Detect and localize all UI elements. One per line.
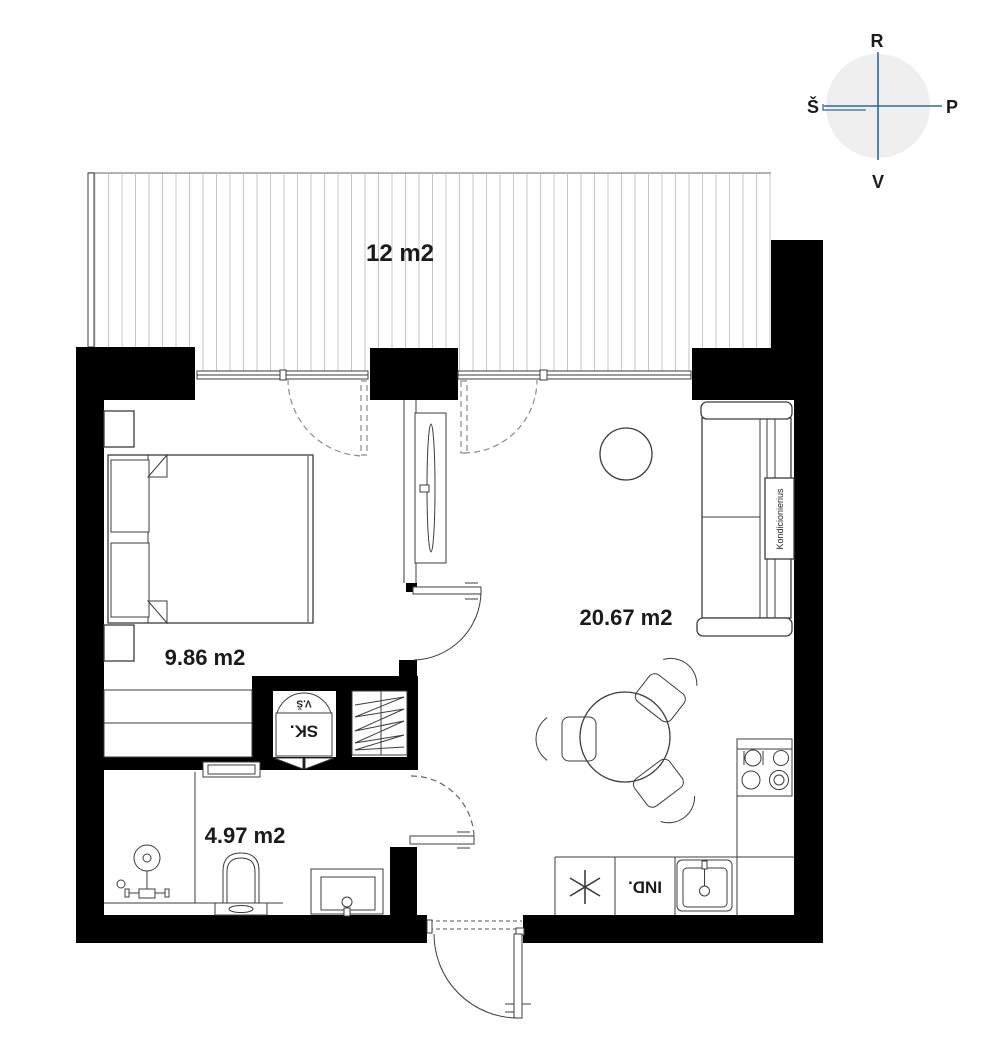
- bathroom-door: [409, 776, 474, 848]
- terrace-deck-boards: [94, 174, 771, 371]
- shower-drain: [117, 880, 125, 888]
- door-swing-arc: [434, 934, 518, 1018]
- radiator-inner: [208, 765, 255, 774]
- air-conditioner: Kondicionierius: [765, 478, 794, 559]
- door-leaf: [461, 381, 467, 453]
- tv-mount: [420, 485, 429, 492]
- wall-segment: [794, 350, 823, 943]
- ac-label: Kondicionierius: [775, 488, 785, 550]
- kitchen-counter: [555, 796, 794, 915]
- washbasin-tap: [342, 897, 352, 907]
- bed: [108, 455, 313, 623]
- shower-handle: [165, 889, 169, 897]
- chair-back: [663, 651, 703, 686]
- door-swing-arc: [409, 776, 474, 836]
- kitchen-sink: [677, 860, 732, 911]
- dining-chair: [536, 717, 596, 761]
- burner: [774, 751, 789, 766]
- side-table: [600, 428, 652, 480]
- wall-segment: [390, 847, 417, 915]
- compass-label-right: P: [946, 97, 958, 117]
- living-room-area-label: 20.67 m2: [580, 605, 673, 630]
- compass-label-top: R: [871, 31, 884, 51]
- wall-segment: [76, 915, 427, 943]
- chair-seat: [562, 717, 596, 761]
- toilet: [215, 853, 267, 915]
- sofa-armrest: [697, 618, 792, 636]
- wall-segment: [252, 676, 418, 691]
- dining-chair: [633, 650, 705, 724]
- window-mullion: [540, 370, 547, 380]
- washbasin-tap-stem: [344, 908, 350, 916]
- floor-plan: 12 m2: [0, 0, 984, 1063]
- vent-shaft: [352, 691, 407, 755]
- wall-segment: [336, 691, 352, 757]
- nightstand: [104, 411, 134, 447]
- wall-segment: [771, 240, 823, 350]
- washbasin: [311, 869, 383, 916]
- stove: [737, 739, 792, 796]
- door-leaf: [361, 381, 367, 455]
- terrace-area-label: 12 m2: [366, 240, 434, 267]
- wall-segment: [523, 915, 823, 943]
- wardrobe: [104, 690, 252, 757]
- wall-segment: [399, 660, 417, 691]
- living-room-balcony-door: [461, 380, 537, 453]
- burner: [745, 750, 761, 766]
- shaft-label: SK.: [290, 722, 318, 741]
- shower-valve: [139, 889, 155, 898]
- compass-label-left: Š: [807, 96, 819, 117]
- door-jamb: [427, 920, 432, 933]
- freezer-symbol: [570, 870, 600, 904]
- toilet-bowl: [223, 853, 259, 903]
- bathroom: 4.97 m2: [104, 762, 383, 916]
- wall-segment: [76, 347, 104, 943]
- burner-inner: [774, 775, 784, 785]
- door-leaf: [410, 836, 474, 844]
- terrace-railing: [88, 173, 94, 347]
- door-swing-arc: [464, 380, 537, 453]
- door-leaf: [413, 587, 481, 594]
- dining-chair: [631, 756, 702, 830]
- pillow: [111, 543, 149, 617]
- shower-handle: [125, 889, 129, 897]
- wall-segment: [252, 691, 273, 757]
- dining-set: [536, 650, 704, 830]
- door-swing-arc: [414, 592, 481, 660]
- burner: [742, 771, 760, 789]
- bedroom-door: [413, 583, 481, 660]
- sofa-armrest: [701, 402, 792, 419]
- vent-label: V.Š: [296, 698, 312, 711]
- toilet-flush: [229, 906, 253, 913]
- wall-segment: [370, 348, 458, 400]
- door-leaf: [514, 934, 522, 1018]
- shower-head-center: [143, 854, 151, 862]
- chair-seat: [631, 756, 687, 810]
- window-mullion: [280, 370, 286, 380]
- radiator: [203, 762, 260, 777]
- bedroom-balcony-door: [288, 379, 367, 456]
- chair-back: [536, 718, 547, 761]
- door-swing-arc: [288, 379, 364, 456]
- shower: [117, 845, 169, 898]
- sink-tap-base: [702, 861, 707, 869]
- terrace: 12 m2: [88, 173, 771, 371]
- dishwasher-label: IND.: [628, 878, 662, 897]
- sink-tap: [700, 886, 710, 896]
- chair-seat: [633, 671, 689, 725]
- vent-shaft-hatch: [355, 697, 404, 750]
- pillow: [111, 460, 149, 532]
- compass-label-bottom: V: [872, 172, 884, 192]
- tv-unit: [415, 413, 446, 563]
- wall-segment: [76, 347, 195, 400]
- floor-plan-canvas: 12 m2: [0, 0, 984, 1063]
- bathroom-area-label: 4.97 m2: [205, 823, 286, 848]
- nightstand: [104, 625, 134, 661]
- chair-back: [661, 796, 702, 830]
- entry-door: [427, 920, 531, 1018]
- bedroom-area-label: 9.86 m2: [165, 645, 246, 670]
- compass: R P V Š: [807, 31, 958, 192]
